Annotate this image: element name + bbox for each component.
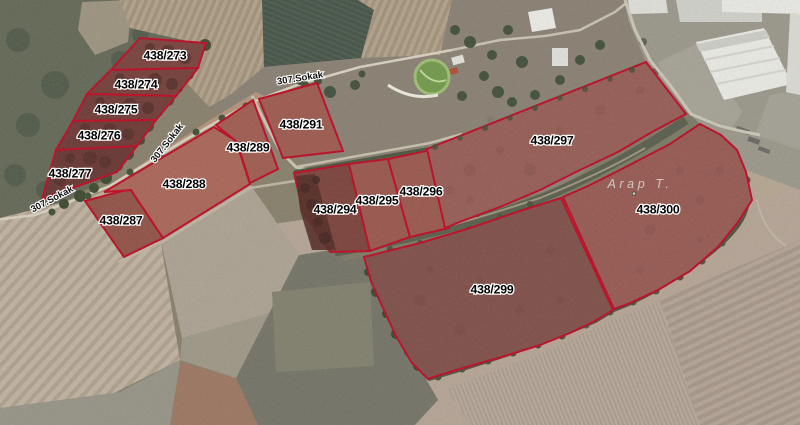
svg-text:438/275: 438/275 <box>94 103 137 117</box>
svg-text:438/291: 438/291 <box>279 118 322 132</box>
svg-text:438/288: 438/288 <box>162 177 205 191</box>
svg-text:Arap T.: Arap T. <box>606 177 672 191</box>
svg-text:438/274: 438/274 <box>114 78 157 92</box>
svg-text:438/295: 438/295 <box>355 194 398 208</box>
svg-text:438/277: 438/277 <box>48 167 91 181</box>
svg-text:438/294: 438/294 <box>313 203 356 217</box>
svg-text:438/297: 438/297 <box>530 134 573 148</box>
svg-text:438/287: 438/287 <box>99 214 142 228</box>
svg-text:438/289: 438/289 <box>226 141 269 155</box>
svg-text:438/273: 438/273 <box>143 49 186 63</box>
svg-text:438/296: 438/296 <box>399 185 442 199</box>
svg-text:438/300: 438/300 <box>636 203 679 217</box>
svg-text:438/276: 438/276 <box>77 129 120 143</box>
svg-text:438/299: 438/299 <box>470 283 513 297</box>
